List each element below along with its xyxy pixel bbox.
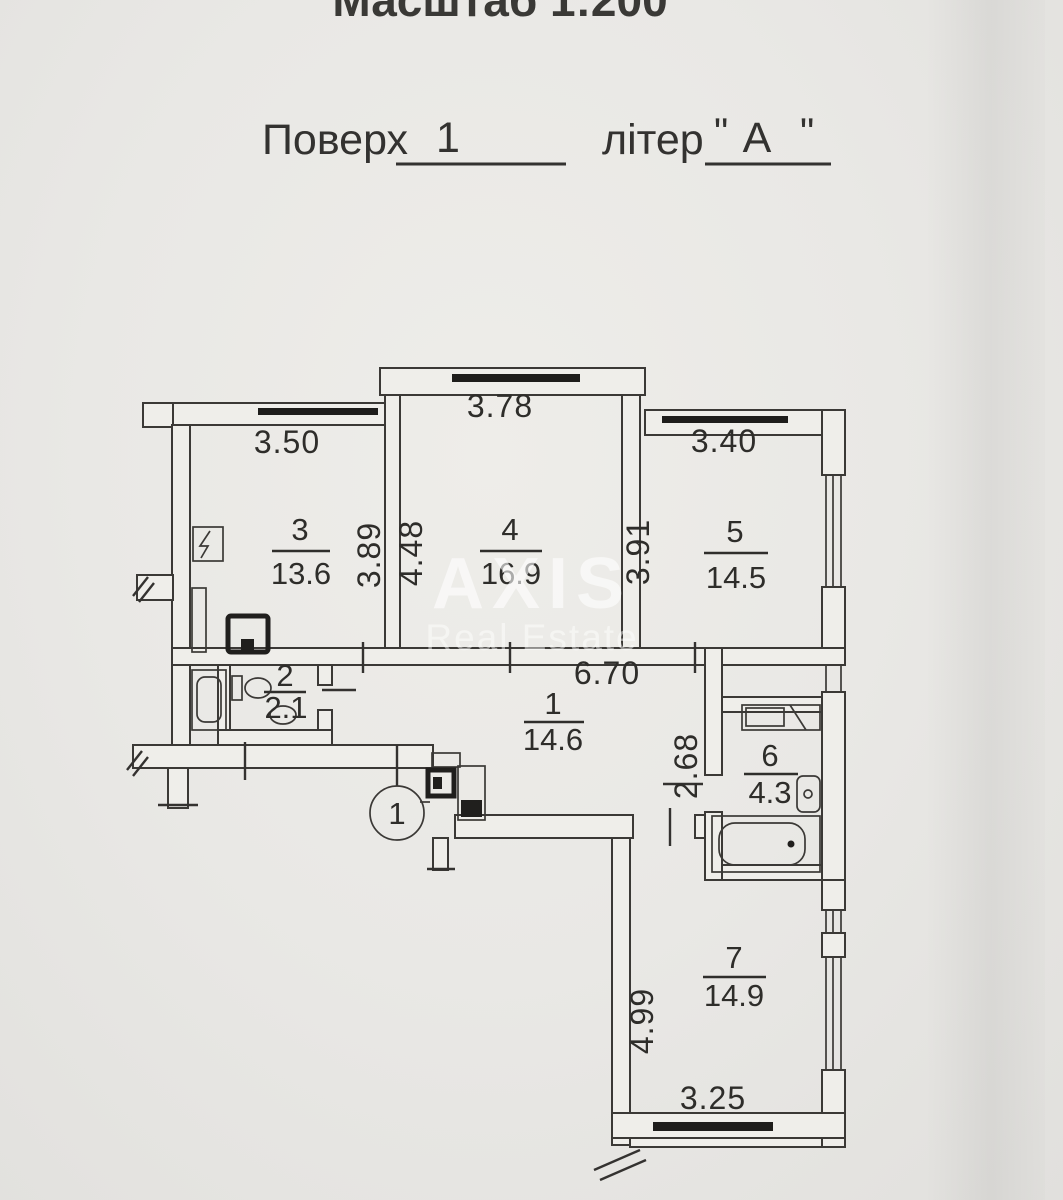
dim-room3-depth: 3.89	[351, 522, 387, 588]
bath2-left-wall	[218, 665, 230, 733]
room-area: 14.5	[706, 560, 766, 595]
vent-shaft-notch	[433, 777, 442, 789]
room-number: 1	[544, 686, 561, 721]
watermark: AXIS Real Estate	[425, 544, 638, 658]
room-number: 6	[761, 738, 778, 773]
bath2-bottom-wall	[218, 730, 332, 745]
letter-value: А	[743, 114, 772, 162]
walls	[133, 368, 845, 1147]
watermark-brand: AXIS	[432, 544, 632, 624]
wall-break-mark	[600, 1160, 646, 1180]
watermark-subtitle: Real Estate	[425, 617, 638, 658]
room-number: 3	[291, 512, 308, 547]
toilet-tank-icon	[232, 676, 242, 700]
right-wall-mullion-block	[822, 933, 845, 957]
room-label-6: 6 4.3	[744, 738, 798, 810]
vent-shaft	[432, 753, 460, 767]
room7-window	[653, 1122, 773, 1131]
scale-title: Масштаб 1:200	[332, 0, 667, 26]
floor-value: 1	[436, 114, 460, 162]
room7-bottom-outer-face	[630, 1138, 822, 1147]
room-number: 7	[725, 940, 742, 975]
header: Масштаб 1:200 Поверх 1 літер " А "	[262, 0, 831, 164]
letter-label: літер	[602, 116, 704, 164]
room-label-7: 7 14.9	[703, 940, 766, 1013]
dim-room4-width: 3.78	[467, 388, 533, 424]
room-label-5: 5 14.5	[704, 514, 768, 595]
sink-icon	[797, 776, 820, 812]
room-area: 14.9	[704, 978, 764, 1013]
dim-hall-width: 6.70	[574, 655, 640, 691]
room5-window	[662, 416, 788, 423]
left-exterior-wall	[172, 425, 190, 763]
bathtub-drain	[788, 841, 795, 848]
room-area: 4.3	[748, 775, 791, 810]
room-area: 14.6	[523, 722, 583, 757]
left-wall-tab	[143, 403, 173, 427]
right-wall-seg	[822, 692, 845, 880]
room-number: 5	[726, 514, 743, 549]
dim-room4-depth: 4.48	[393, 520, 429, 586]
room-area: 2.1	[264, 690, 307, 725]
dim-room6-depth: 2.68	[668, 733, 704, 799]
room6-left-wall	[705, 648, 722, 775]
vent-shaft-bar	[461, 800, 482, 817]
stair-wall-stub	[168, 768, 188, 808]
room-area: 13.6	[271, 556, 331, 591]
wall-break-mark	[594, 1150, 640, 1170]
room-label-1: 1 14.6	[523, 686, 584, 757]
bath2-right-wall	[318, 665, 332, 685]
axis-number: 1	[388, 796, 405, 831]
right-wall-seg	[822, 410, 845, 475]
sink-tap	[804, 790, 812, 798]
right-wall-seg	[822, 880, 845, 910]
dim-room5-width: 3.40	[691, 423, 757, 459]
room-number: 4	[501, 512, 518, 547]
room-label-3: 3 13.6	[271, 512, 331, 591]
right-wall-seg	[822, 587, 845, 650]
room-number: 2	[276, 658, 293, 693]
floorplan-photo: Масштаб 1:200 Поверх 1 літер " А "	[0, 0, 1063, 1200]
stove-detail	[241, 639, 254, 650]
dim-room3-width: 3.50	[254, 424, 320, 460]
electrical-panel-icon	[193, 527, 223, 561]
floor-label: Поверх	[262, 116, 409, 164]
lightning-icon	[200, 531, 210, 558]
hall-bottom-wall	[133, 745, 433, 768]
dim-room7-width: 3.25	[680, 1080, 746, 1116]
entry-door-stub	[433, 838, 448, 870]
room3-window	[258, 408, 378, 415]
letter-open-quote: "	[714, 111, 728, 155]
room-label-2: 2 2.1	[264, 658, 308, 725]
floorplan-drawing: Масштаб 1:200 Поверх 1 літер " А "	[0, 0, 1063, 1200]
room4-window	[452, 374, 580, 382]
letter-close-quote: "	[800, 111, 814, 155]
corridor-bottom-wall	[455, 815, 633, 838]
dim-room7-depth: 4.99	[624, 988, 660, 1054]
duct-strip	[192, 588, 206, 652]
